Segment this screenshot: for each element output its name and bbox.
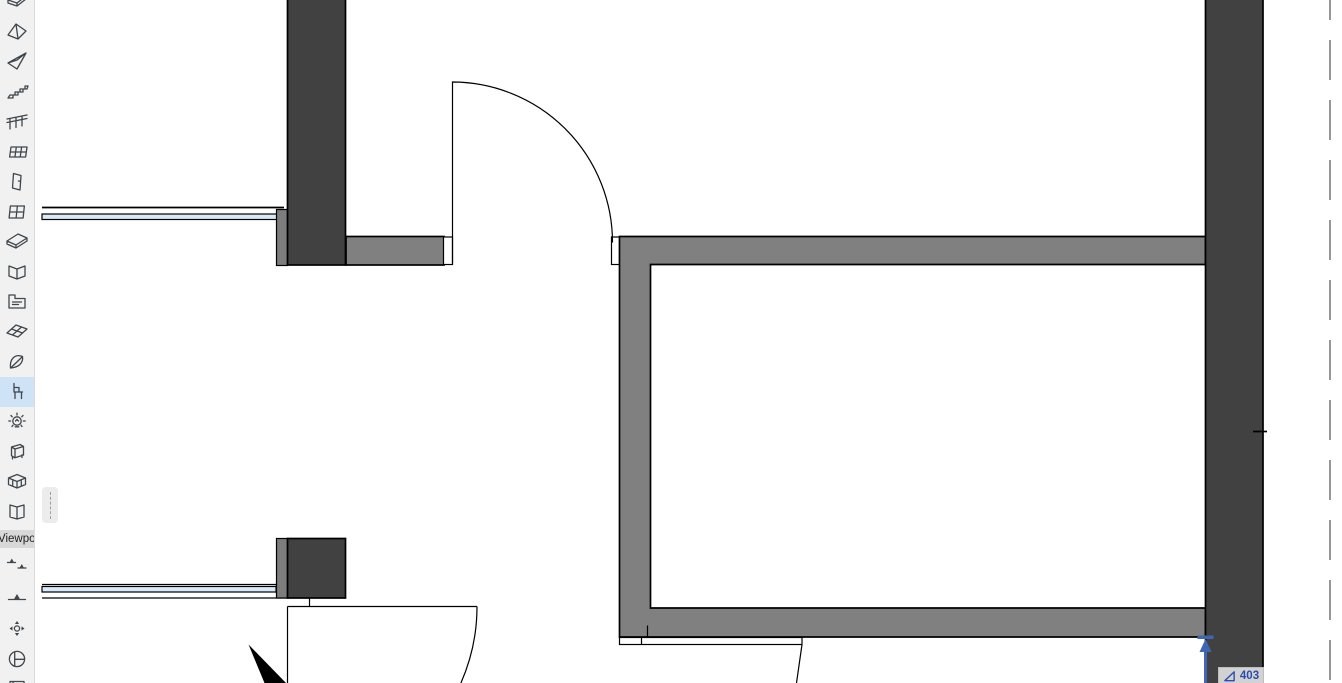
tool-zone[interactable] xyxy=(0,287,34,317)
tool-detail[interactable] xyxy=(0,643,34,674)
morph-icon xyxy=(5,350,29,374)
tool-corner-window[interactable] xyxy=(0,257,34,287)
window-top-left[interactable] xyxy=(42,208,286,223)
detail-icon xyxy=(5,647,29,671)
viewpoints-group-header[interactable]: Viewpoi xyxy=(0,530,34,548)
slab-icon xyxy=(5,0,29,14)
mesh-icon xyxy=(5,320,29,344)
tool-lamp[interactable] xyxy=(0,407,34,437)
toolbox: Viewpoi xyxy=(0,0,35,683)
panel-drag-handle[interactable] xyxy=(42,487,58,523)
tool-slab[interactable] xyxy=(0,0,34,17)
railing-icon xyxy=(5,110,29,134)
tool-window[interactable] xyxy=(0,197,34,227)
tool-equipment[interactable] xyxy=(0,437,34,467)
tool-worksheet[interactable] xyxy=(0,674,34,683)
window-bottom-left[interactable] xyxy=(42,583,288,598)
application-window: Viewpoi xyxy=(0,0,1342,683)
grid-element-icon xyxy=(5,470,29,494)
tool-mesh[interactable] xyxy=(0,317,34,347)
tool-curtain-wall[interactable] xyxy=(0,137,34,167)
tool-orbit[interactable] xyxy=(0,612,34,643)
section-icon xyxy=(5,554,29,578)
lamp-icon xyxy=(5,410,29,434)
elevation-icon xyxy=(5,585,29,609)
tracker-badge[interactable]: 403 xyxy=(1218,667,1264,683)
tool-elevation[interactable] xyxy=(0,581,34,612)
stair-icon xyxy=(5,80,29,104)
shell-icon xyxy=(5,50,29,74)
tool-sheet[interactable] xyxy=(0,497,34,527)
skylight-icon xyxy=(5,230,29,254)
drag-dots-icon xyxy=(50,492,51,519)
tool-skylight[interactable] xyxy=(0,227,34,257)
worksheet-icon xyxy=(5,678,29,683)
wall-dark-right[interactable] xyxy=(1206,0,1268,683)
tracker-value: 403 xyxy=(1240,670,1259,682)
window-icon xyxy=(5,200,29,224)
object-chair-icon xyxy=(5,380,29,404)
wall-segment-top[interactable] xyxy=(346,237,444,266)
sheet-icon xyxy=(5,500,29,524)
equipment-icon xyxy=(5,440,29,464)
tool-section[interactable] xyxy=(0,550,34,581)
tool-roof[interactable] xyxy=(0,17,34,47)
tool-object[interactable] xyxy=(0,377,34,407)
cursor-arrow xyxy=(249,645,287,683)
angle-icon xyxy=(1223,670,1236,683)
orbit-icon xyxy=(5,616,29,640)
floor-plan-canvas[interactable] xyxy=(0,0,1342,683)
tool-shell[interactable] xyxy=(0,47,34,77)
door-lower-left[interactable] xyxy=(288,598,478,683)
curtain-wall-icon xyxy=(5,140,29,164)
door-icon xyxy=(5,170,29,194)
tool-stair[interactable] xyxy=(0,77,34,107)
wall-pier-top[interactable] xyxy=(277,0,346,266)
tool-morph[interactable] xyxy=(0,347,34,377)
wall-pier-lower[interactable] xyxy=(277,539,346,599)
zone-icon xyxy=(5,290,29,314)
roof-icon xyxy=(5,20,29,44)
tool-grid-element[interactable] xyxy=(0,467,34,497)
door-top[interactable] xyxy=(444,82,620,265)
tool-door[interactable] xyxy=(0,167,34,197)
corner-window-icon xyxy=(5,260,29,284)
tool-railing[interactable] xyxy=(0,107,34,137)
room-walls[interactable] xyxy=(620,237,1206,638)
